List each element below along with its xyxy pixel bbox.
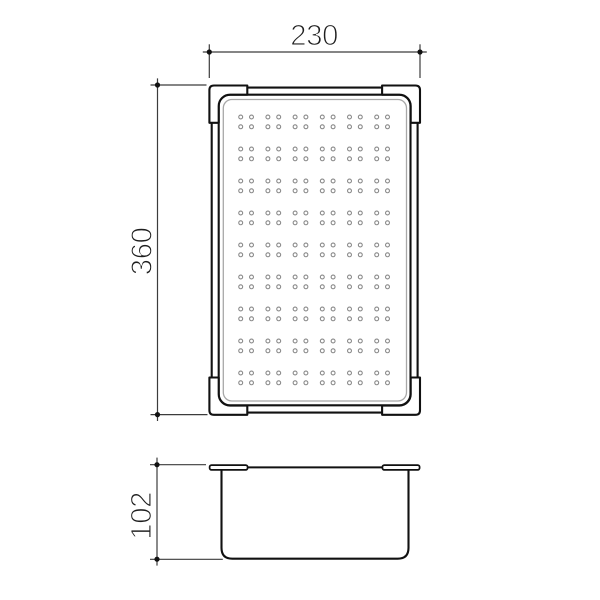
svg-text:360: 360 <box>126 227 158 275</box>
svg-text:230: 230 <box>290 20 338 52</box>
svg-text:102: 102 <box>126 492 158 540</box>
